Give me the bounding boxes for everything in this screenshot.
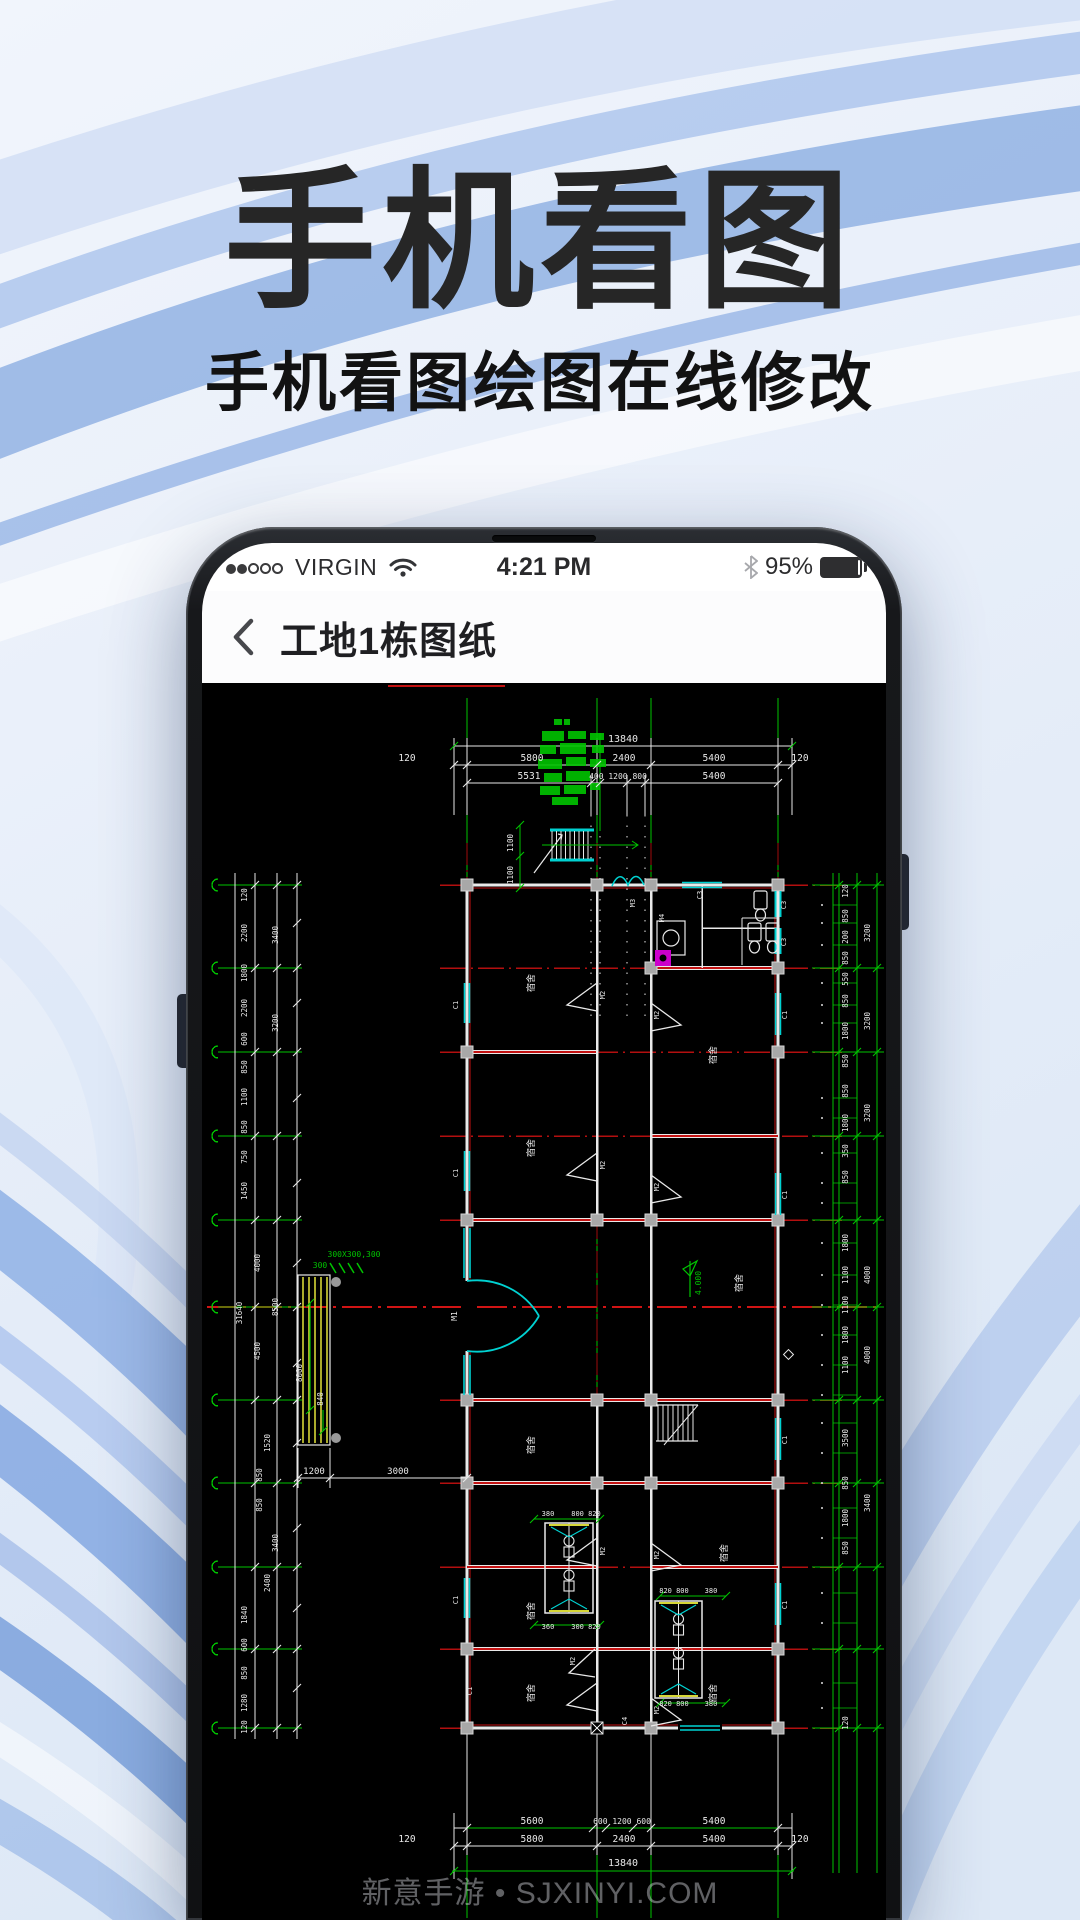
svg-text:3000: 3000 [387, 1467, 409, 1477]
svg-text:850: 850 [841, 1054, 850, 1068]
svg-text:2400: 2400 [613, 753, 636, 764]
svg-text:M2: M2 [653, 1011, 661, 1019]
svg-text:4000: 4000 [863, 1345, 872, 1364]
svg-text:120: 120 [398, 753, 415, 764]
svg-text:120: 120 [841, 884, 850, 898]
clock: 4:21 PM [497, 553, 591, 582]
svg-text:300X300,300: 300X300,300 [328, 1250, 381, 1259]
phone-mockup: VIRGIN 4:21 PM 95% [186, 527, 902, 1920]
svg-text:300 820: 300 820 [571, 1623, 601, 1631]
svg-text:4.000: 4.000 [694, 1271, 703, 1295]
svg-text:400 1200 800: 400 1200 800 [589, 772, 647, 781]
svg-text:600: 600 [240, 1032, 249, 1046]
cad-floorplan-drawing[interactable]: 138401205800240054001205531400 1200 8005… [202, 683, 886, 1920]
svg-text:1800: 1800 [841, 1113, 850, 1132]
svg-text:宿舍: 宿舍 [733, 1274, 745, 1292]
svg-text:850: 850 [841, 1476, 850, 1490]
volume-button[interactable] [177, 994, 186, 1068]
app-header: 工地1栋图纸 [202, 591, 886, 683]
back-button[interactable] [230, 616, 256, 658]
svg-text:M2: M2 [569, 1657, 577, 1665]
svg-text:350: 350 [841, 1144, 850, 1158]
svg-text:M2: M2 [653, 1551, 661, 1559]
svg-text:3400: 3400 [271, 1533, 280, 1552]
page-title: 手机看图 [0, 118, 1080, 338]
svg-text:850: 850 [240, 1120, 249, 1134]
svg-text:1520: 1520 [263, 1433, 272, 1452]
svg-text:2200: 2200 [240, 998, 249, 1017]
battery-icon [820, 557, 862, 578]
svg-text:宿舍: 宿舍 [525, 1684, 537, 1702]
svg-text:M2: M2 [599, 1547, 607, 1555]
svg-text:850: 850 [841, 1541, 850, 1555]
svg-text:600: 600 [240, 1638, 249, 1652]
svg-text:宿舍: 宿舍 [707, 1684, 719, 1702]
svg-text:5400: 5400 [703, 1816, 726, 1827]
svg-text:5400: 5400 [703, 771, 726, 782]
carrier-label: VIRGIN [295, 554, 377, 581]
svg-text:1200: 1200 [303, 1467, 325, 1477]
svg-text:M4: M4 [658, 914, 666, 922]
svg-text:850: 850 [841, 951, 850, 965]
svg-text:3400: 3400 [271, 925, 280, 944]
svg-text:850: 850 [255, 1468, 264, 1482]
svg-text:600 1200 600: 600 1200 600 [593, 1817, 651, 1826]
wifi-icon [388, 556, 418, 578]
svg-text:840: 840 [316, 1392, 325, 1406]
svg-text:宿舍: 宿舍 [718, 1544, 730, 1562]
svg-text:800 820: 800 820 [571, 1510, 601, 1518]
svg-text:1800: 1800 [841, 1508, 850, 1527]
svg-text:4500: 4500 [253, 1341, 262, 1360]
svg-text:M1: M1 [450, 1311, 459, 1321]
svg-text:850: 850 [841, 1170, 850, 1184]
doors-windows-fixtures [298, 830, 793, 1732]
svg-text:3500: 3500 [841, 1428, 850, 1447]
svg-text:4000: 4000 [863, 1265, 872, 1284]
svg-text:C3: C3 [780, 901, 788, 909]
svg-text:850: 850 [841, 994, 850, 1008]
svg-text:120: 120 [240, 1720, 249, 1734]
earpiece-speaker [492, 535, 596, 542]
svg-text:C1: C1 [452, 1001, 460, 1009]
svg-text:1800: 1800 [841, 1233, 850, 1252]
svg-text:C1: C1 [452, 1169, 460, 1177]
svg-text:C1: C1 [781, 1436, 789, 1444]
svg-text:120: 120 [398, 1834, 415, 1845]
svg-text:13840: 13840 [608, 734, 638, 745]
svg-text:宿舍: 宿舍 [525, 1139, 537, 1157]
svg-text:850: 850 [240, 1060, 249, 1074]
svg-text:3200: 3200 [271, 1013, 280, 1032]
svg-text:1100: 1100 [841, 1295, 850, 1314]
svg-text:宿舍: 宿舍 [707, 1046, 719, 1064]
svg-text:1100: 1100 [240, 1087, 249, 1106]
svg-text:750: 750 [240, 1150, 249, 1164]
svg-text:C1: C1 [452, 1596, 460, 1604]
svg-text:1800: 1800 [841, 1021, 850, 1040]
svg-text:3200: 3200 [863, 1103, 872, 1122]
svg-text:850: 850 [255, 1498, 264, 1512]
svg-text:31640: 31640 [235, 1301, 244, 1324]
svg-text:300: 300 [313, 1261, 328, 1270]
phone-screen: VIRGIN 4:21 PM 95% [202, 543, 886, 1920]
svg-text:120: 120 [240, 888, 249, 902]
watermark: 新意手游 • SJXINYI.COM [362, 1868, 719, 1912]
svg-text:120: 120 [841, 1716, 850, 1730]
svg-text:1100: 1100 [841, 1355, 850, 1374]
page-subtitle: 手机看图绘图在线修改 [0, 332, 1080, 424]
svg-text:5800: 5800 [521, 1834, 544, 1845]
svg-text:3200: 3200 [863, 1011, 872, 1030]
svg-text:2200: 2200 [240, 923, 249, 942]
svg-text:2400: 2400 [613, 1834, 636, 1845]
svg-text:C1: C1 [781, 1011, 789, 1019]
svg-text:2400: 2400 [263, 1573, 272, 1592]
svg-text:1450: 1450 [240, 1181, 249, 1200]
svg-text:M2: M2 [599, 991, 607, 999]
svg-text:850: 850 [841, 909, 850, 923]
signal-strength-icon [226, 553, 284, 581]
svg-text:200: 200 [841, 930, 850, 944]
svg-text:360: 360 [542, 1623, 555, 1631]
svg-text:C3: C3 [780, 938, 788, 946]
svg-text:宿舍: 宿舍 [525, 974, 537, 992]
svg-text:1280: 1280 [240, 1693, 249, 1712]
svg-text:宿舍: 宿舍 [525, 1436, 537, 1454]
svg-text:3200: 3200 [863, 923, 872, 942]
svg-text:5400: 5400 [703, 1834, 726, 1845]
svg-text:850: 850 [841, 1084, 850, 1098]
svg-text:C1: C1 [466, 1687, 474, 1695]
svg-text:M2: M2 [653, 1706, 661, 1714]
svg-text:5800: 5800 [521, 753, 544, 764]
svg-text:5400: 5400 [703, 753, 726, 764]
drawing-title: 工地1栋图纸 [280, 610, 497, 665]
promo-page: 手机看图 手机看图绘图在线修改 VIRGIN 4:21 PM [0, 0, 1080, 1920]
svg-text:C1: C1 [781, 1191, 789, 1199]
svg-text:4000: 4000 [253, 1253, 262, 1272]
bluetooth-icon [744, 555, 758, 579]
svg-text:1800: 1800 [240, 963, 249, 982]
status-bar: VIRGIN 4:21 PM 95% [202, 543, 886, 591]
svg-text:5600: 5600 [521, 1816, 544, 1827]
svg-text:1840: 1840 [240, 1605, 249, 1624]
svg-text:宿舍: 宿舍 [525, 1602, 537, 1620]
svg-text:M2: M2 [653, 1183, 661, 1191]
svg-text:3400: 3400 [863, 1493, 872, 1512]
svg-text:550: 550 [841, 972, 850, 986]
svg-text:8000: 8000 [295, 1363, 304, 1382]
svg-text:820 800: 820 800 [659, 1587, 689, 1595]
svg-text:850: 850 [240, 1666, 249, 1680]
svg-text:C4: C4 [621, 1717, 629, 1725]
svg-text:120: 120 [791, 753, 808, 764]
svg-text:1800: 1800 [841, 1325, 850, 1344]
svg-text:380: 380 [705, 1587, 718, 1595]
svg-text:1100: 1100 [841, 1265, 850, 1284]
svg-text:C3: C3 [696, 891, 704, 899]
svg-text:1100: 1100 [506, 865, 515, 884]
svg-text:M2: M2 [599, 1161, 607, 1169]
svg-text:120: 120 [791, 1834, 808, 1845]
cad-viewer[interactable]: 138401205800240054001205531400 1200 8005… [202, 683, 886, 1920]
svg-text:8500: 8500 [271, 1297, 280, 1316]
svg-text:820 800: 820 800 [659, 1700, 689, 1708]
battery-percent-label: 95% [765, 553, 813, 581]
svg-text:5531: 5531 [518, 771, 541, 782]
svg-text:380: 380 [542, 1510, 555, 1518]
svg-text:M3: M3 [629, 899, 637, 907]
svg-text:1100: 1100 [506, 833, 515, 852]
svg-text:C1: C1 [781, 1601, 789, 1609]
